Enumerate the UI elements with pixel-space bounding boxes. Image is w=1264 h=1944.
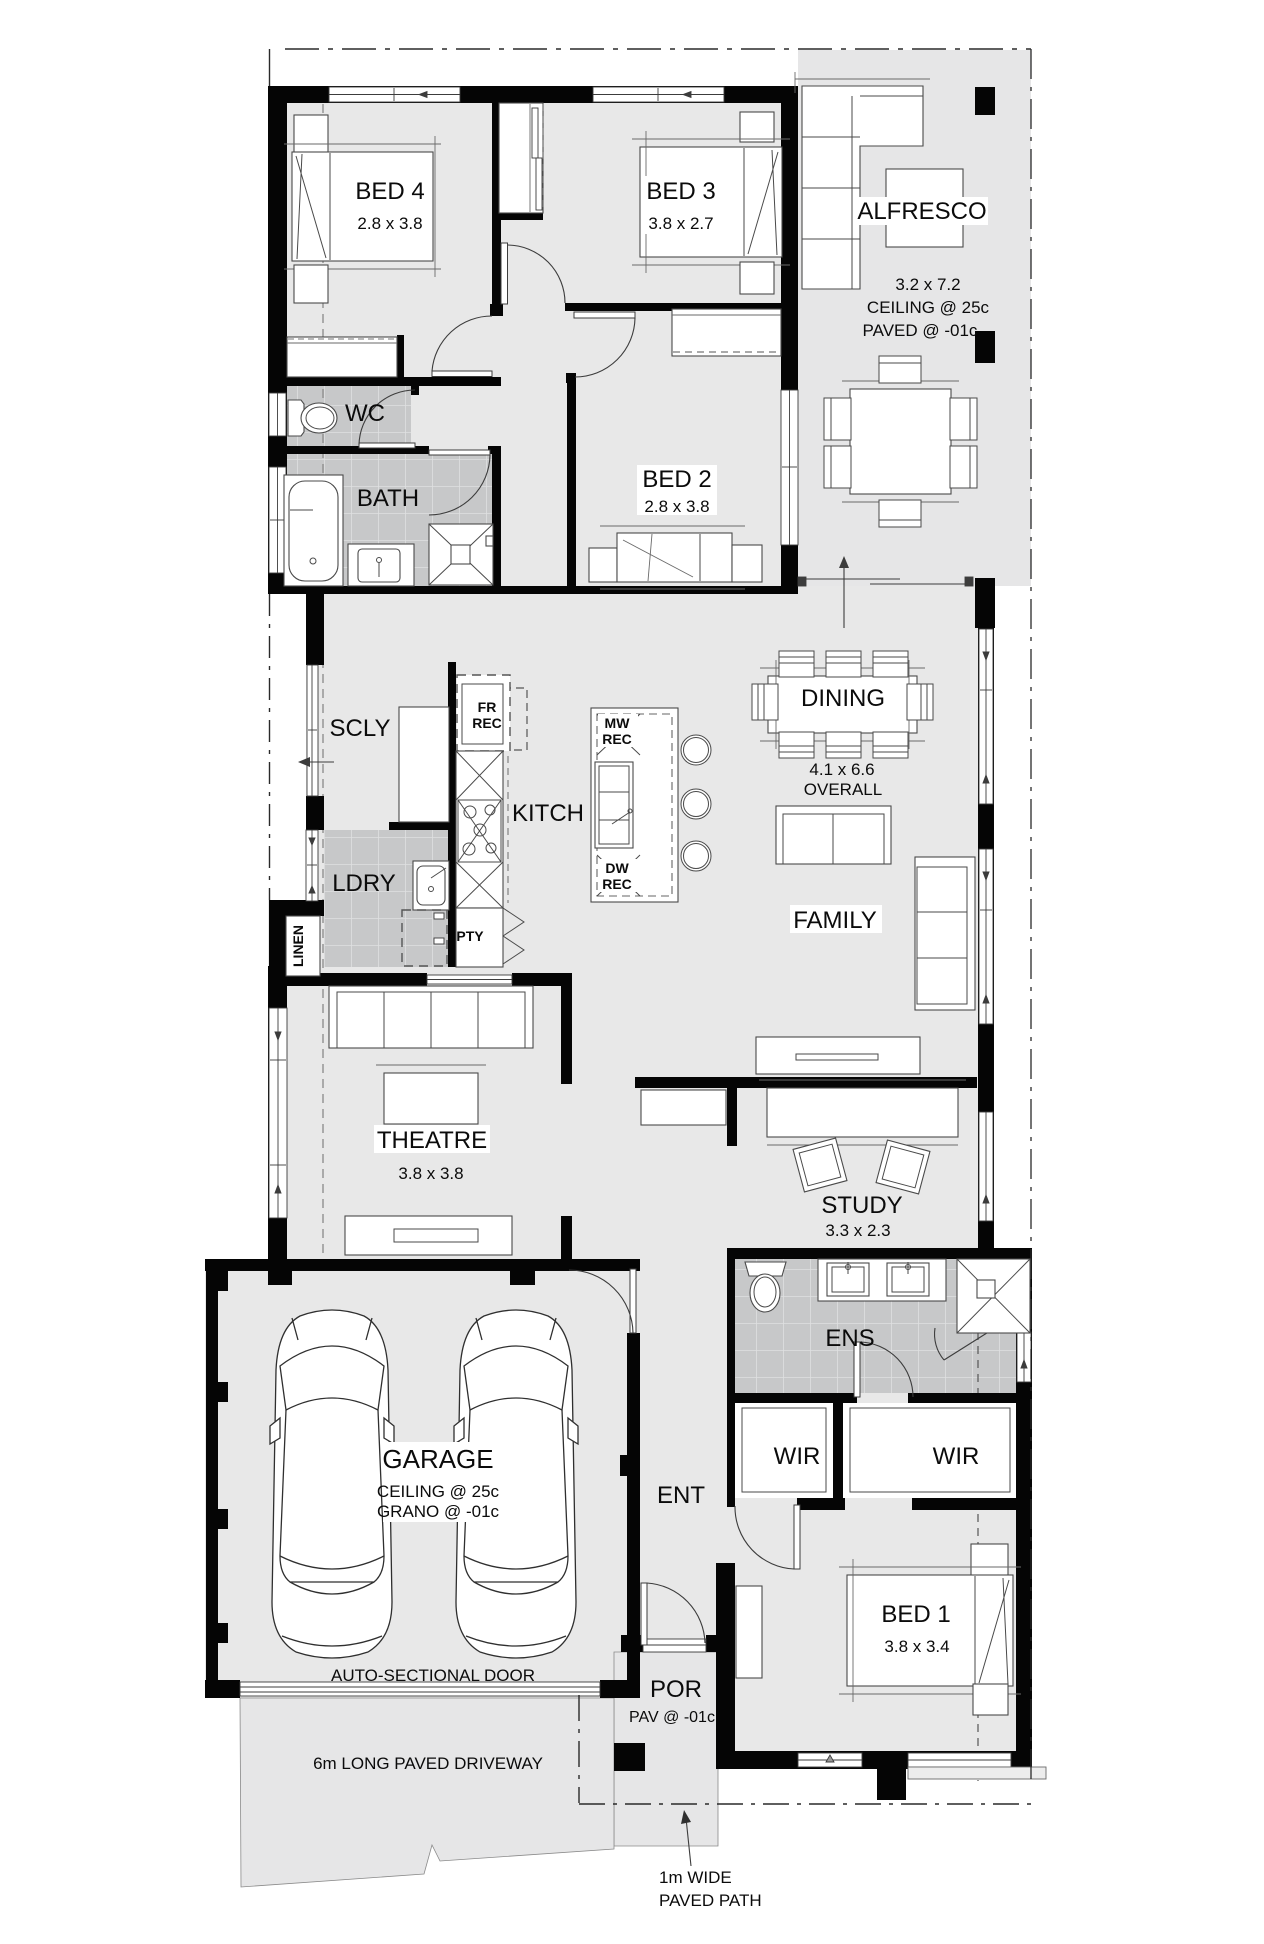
svg-text:OVERALL: OVERALL <box>804 780 882 799</box>
svg-text:STUDY: STUDY <box>821 1192 902 1219</box>
svg-text:PAV @ -01c: PAV @ -01c <box>629 1709 715 1726</box>
svg-text:SCLY: SCLY <box>330 715 391 742</box>
svg-text:ENT: ENT <box>657 1482 705 1509</box>
svg-text:THEATRE: THEATRE <box>377 1127 487 1154</box>
svg-text:LINEN: LINEN <box>290 925 306 967</box>
svg-text:3.3 x 2.3: 3.3 x 2.3 <box>825 1221 890 1240</box>
svg-text:BED 3: BED 3 <box>646 178 715 205</box>
svg-text:KITCH: KITCH <box>512 800 584 827</box>
svg-text:3.2 x 7.2: 3.2 x 7.2 <box>895 275 960 294</box>
svg-text:GARAGE: GARAGE <box>382 1444 493 1474</box>
svg-text:PAVED @ -01c: PAVED @ -01c <box>863 321 978 340</box>
svg-text:PTY: PTY <box>456 928 484 944</box>
svg-text:3.8 x 2.7: 3.8 x 2.7 <box>648 214 713 233</box>
svg-text:MW: MW <box>605 715 631 731</box>
svg-text:BATH: BATH <box>357 485 419 512</box>
svg-text:POR: POR <box>650 1676 702 1703</box>
svg-text:BED 1: BED 1 <box>881 1601 950 1628</box>
svg-text:REC: REC <box>472 715 502 731</box>
svg-text:WIR: WIR <box>774 1443 821 1470</box>
svg-text:CEILING @ 25c: CEILING @ 25c <box>867 298 990 317</box>
svg-text:AUTO-SECTIONAL DOOR: AUTO-SECTIONAL DOOR <box>331 1666 535 1685</box>
svg-text:BED 4: BED 4 <box>355 178 424 205</box>
svg-text:LDRY: LDRY <box>332 870 396 897</box>
svg-text:4.1 x 6.6: 4.1 x 6.6 <box>809 760 874 779</box>
svg-text:WIR: WIR <box>933 1443 980 1470</box>
svg-text:BED 2: BED 2 <box>642 466 711 493</box>
svg-text:PAVED PATH: PAVED PATH <box>659 1891 762 1910</box>
svg-text:REC: REC <box>602 876 632 892</box>
svg-text:2.8 x 3.8: 2.8 x 3.8 <box>357 214 422 233</box>
svg-text:CEILING @ 25c: CEILING @ 25c <box>377 1482 500 1501</box>
svg-text:REC: REC <box>602 731 632 747</box>
svg-text:6m LONG PAVED DRIVEWAY: 6m LONG PAVED DRIVEWAY <box>313 1754 543 1773</box>
svg-text:FR: FR <box>478 699 497 715</box>
svg-text:DW: DW <box>605 860 629 876</box>
svg-text:1m WIDE: 1m WIDE <box>659 1868 732 1887</box>
svg-text:3.8 x 3.8: 3.8 x 3.8 <box>398 1164 463 1183</box>
svg-text:ALFRESCO: ALFRESCO <box>857 198 986 225</box>
svg-text:FAMILY: FAMILY <box>793 907 877 934</box>
svg-text:GRANO @ -01c: GRANO @ -01c <box>377 1502 500 1521</box>
svg-text:WC: WC <box>345 400 385 427</box>
svg-text:2.8 x 3.8: 2.8 x 3.8 <box>644 497 709 516</box>
svg-text:DINING: DINING <box>801 685 885 712</box>
svg-text:ENS: ENS <box>825 1325 874 1352</box>
svg-text:3.8 x 3.4: 3.8 x 3.4 <box>884 1637 949 1656</box>
